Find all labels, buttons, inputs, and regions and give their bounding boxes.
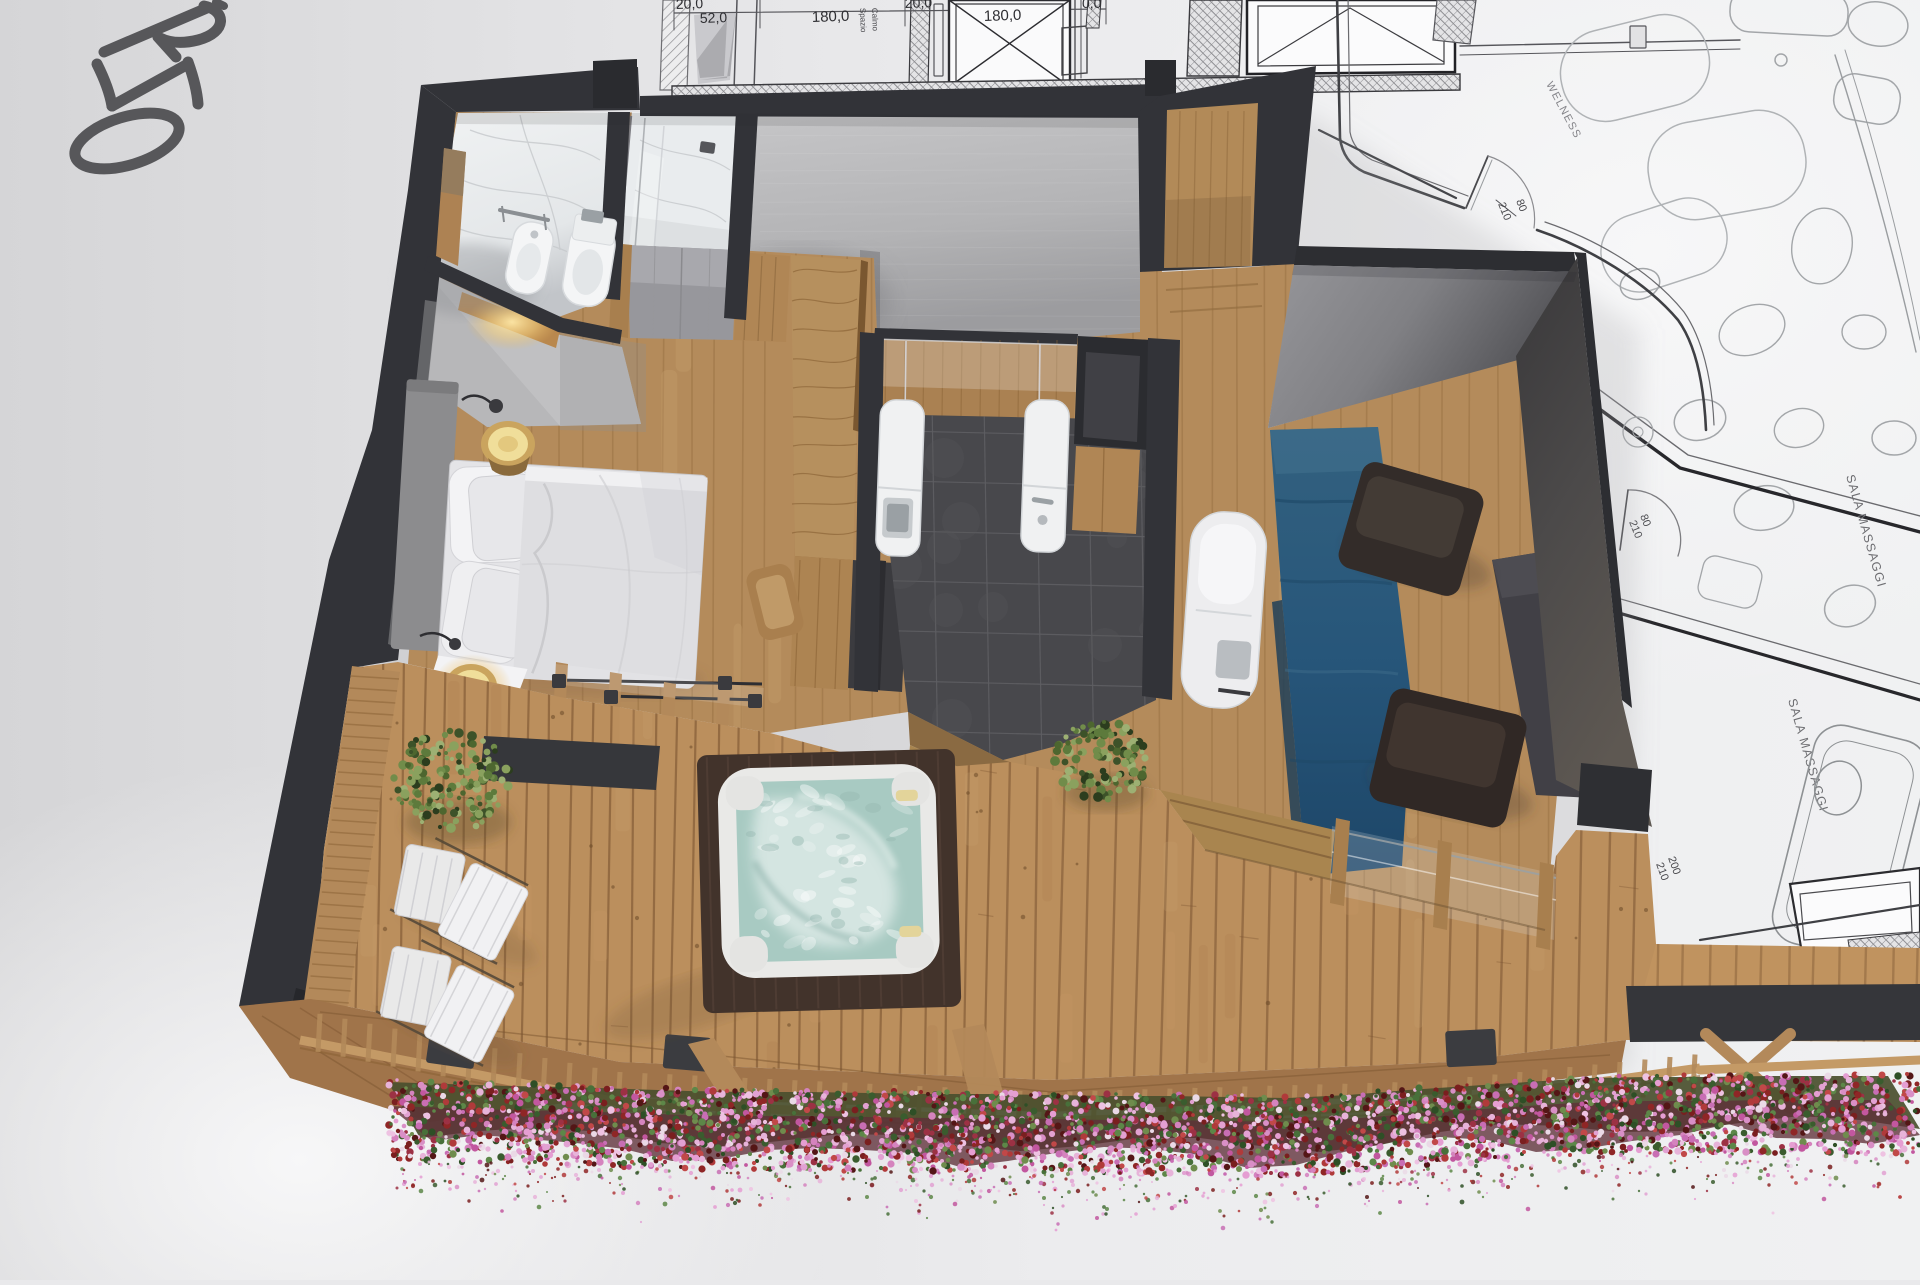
svg-text:Spazio: Spazio — [858, 8, 868, 33]
svg-text:0,0: 0,0 — [1082, 0, 1102, 11]
svg-text:Calmo: Calmo — [870, 8, 880, 32]
svg-text:20,0: 20,0 — [905, 0, 933, 11]
svg-text:180,0: 180,0 — [984, 7, 1022, 25]
svg-text:52,0: 52,0 — [700, 9, 728, 26]
svg-text:180,0: 180,0 — [812, 8, 850, 26]
